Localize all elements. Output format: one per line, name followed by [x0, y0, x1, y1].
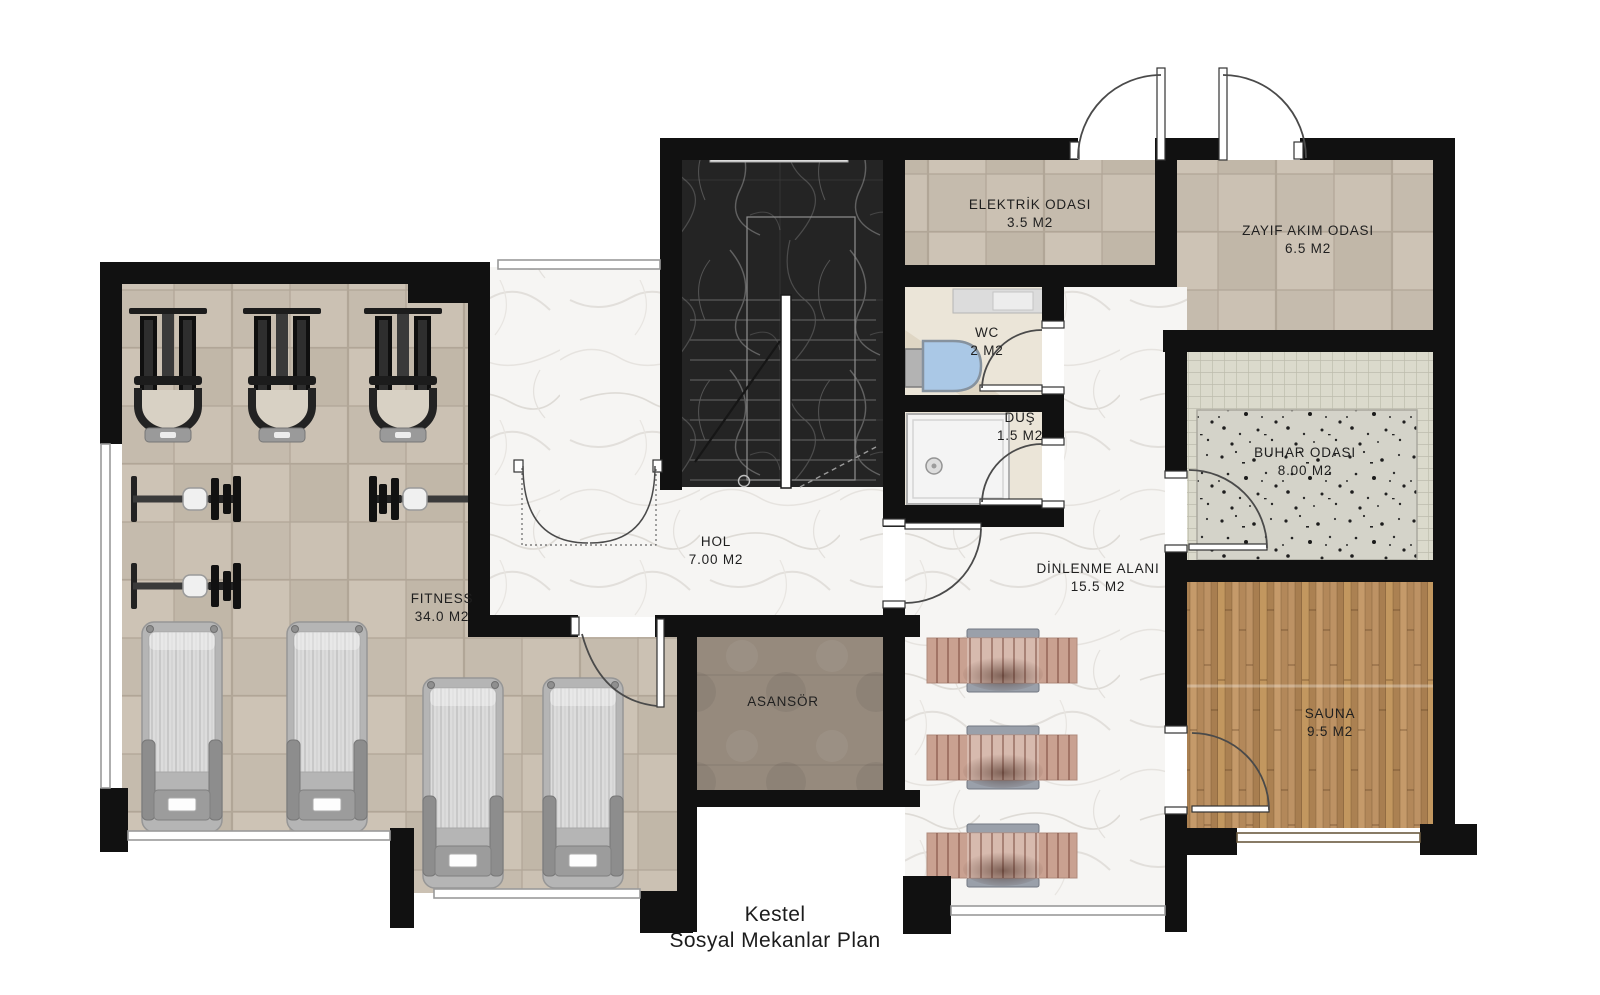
treadmill-icon [423, 678, 503, 888]
room-area: 9.5 M2 [1305, 723, 1356, 741]
elevator-floor [697, 637, 883, 790]
entrance-door-elektrik [1070, 68, 1165, 160]
window-fitness-bottom-left [128, 831, 390, 840]
room-label-dinlenme: DİNLENME ALANI 15.5 M2 [1037, 560, 1160, 596]
room-area: 2 M2 [970, 342, 1003, 360]
room-area: 34.0 M2 [411, 608, 474, 626]
gym-machine-icon [364, 308, 442, 442]
room-name: DUŞ [997, 409, 1043, 427]
room-label-asansor: ASANSÖR [747, 693, 819, 711]
room-area: 7.00 M2 [689, 551, 743, 569]
entrance-door-zayif [1219, 68, 1306, 160]
dinlenme-floor-mid [1064, 330, 1165, 527]
dus-fixtures [907, 414, 1009, 504]
floor-plan-page: FITNESS 34.0 M2 HOL 7.00 M2 ASANSÖR ELEK… [0, 0, 1600, 995]
room-area: 8.00 M2 [1254, 462, 1356, 480]
treadmill-icon [543, 678, 623, 888]
room-area: 3.5 M2 [969, 214, 1091, 232]
stair-handrail [781, 295, 791, 488]
room-label-elektrik: ELEKTRİK ODASI 3.5 M2 [969, 196, 1091, 232]
room-label-buhar: BUHAR ODASI 8.00 M2 [1254, 444, 1356, 480]
window-dinlenme-bottom [951, 906, 1165, 915]
plan-title: Kestel Sosyal Mekanlar Plan [669, 902, 880, 955]
room-name: WC [970, 324, 1003, 342]
gym-machine-icon [243, 308, 321, 442]
window-fitness-bottom-right [434, 889, 640, 898]
lounger-icon [927, 726, 1077, 789]
toilet-tank [905, 349, 923, 387]
room-label-zayif-akim: ZAYIF AKIM ODASI 6.5 M2 [1242, 222, 1374, 258]
room-name: DİNLENME ALANI [1037, 560, 1160, 578]
gym-machine-icon [129, 308, 207, 442]
lounger-icon [927, 629, 1077, 692]
treadmill-icon [142, 622, 222, 832]
room-label-fitness: FITNESS 34.0 M2 [411, 590, 474, 626]
treadmill-icon [287, 622, 367, 832]
window-vestibule-top [498, 260, 660, 269]
room-name: HOL [689, 533, 743, 551]
room-name: BUHAR ODASI [1254, 444, 1356, 462]
window-sauna-bottom [1237, 833, 1420, 842]
room-name: FITNESS [411, 590, 474, 608]
room-label-sauna: SAUNA 9.5 M2 [1305, 705, 1356, 741]
room-label-wc: WC 2 M2 [970, 324, 1003, 360]
wc-sink [993, 292, 1033, 310]
plan-title-line2: Sosyal Mekanlar Plan [669, 928, 880, 954]
buhar-terrazzo-bench [1197, 410, 1417, 560]
shower-tray [907, 414, 1009, 504]
plan-title-line1: Kestel [669, 902, 880, 928]
floor-plan-svg [0, 0, 1600, 995]
room-label-dus: DUŞ 1.5 M2 [997, 409, 1043, 445]
window-fitness-left [101, 444, 110, 788]
room-area: 6.5 M2 [1242, 240, 1374, 258]
room-name: SAUNA [1305, 705, 1356, 723]
loungers [927, 629, 1077, 887]
room-name: ZAYIF AKIM ODASI [1242, 222, 1374, 240]
dinlenme-floor-top [1064, 287, 1187, 330]
room-area: 15.5 M2 [1037, 578, 1160, 596]
room-area: 1.5 M2 [997, 427, 1043, 445]
shower-drain-dot [932, 464, 937, 469]
room-label-hol: HOL 7.00 M2 [689, 533, 743, 569]
room-name: ASANSÖR [747, 693, 819, 711]
room-name: ELEKTRİK ODASI [969, 196, 1091, 214]
